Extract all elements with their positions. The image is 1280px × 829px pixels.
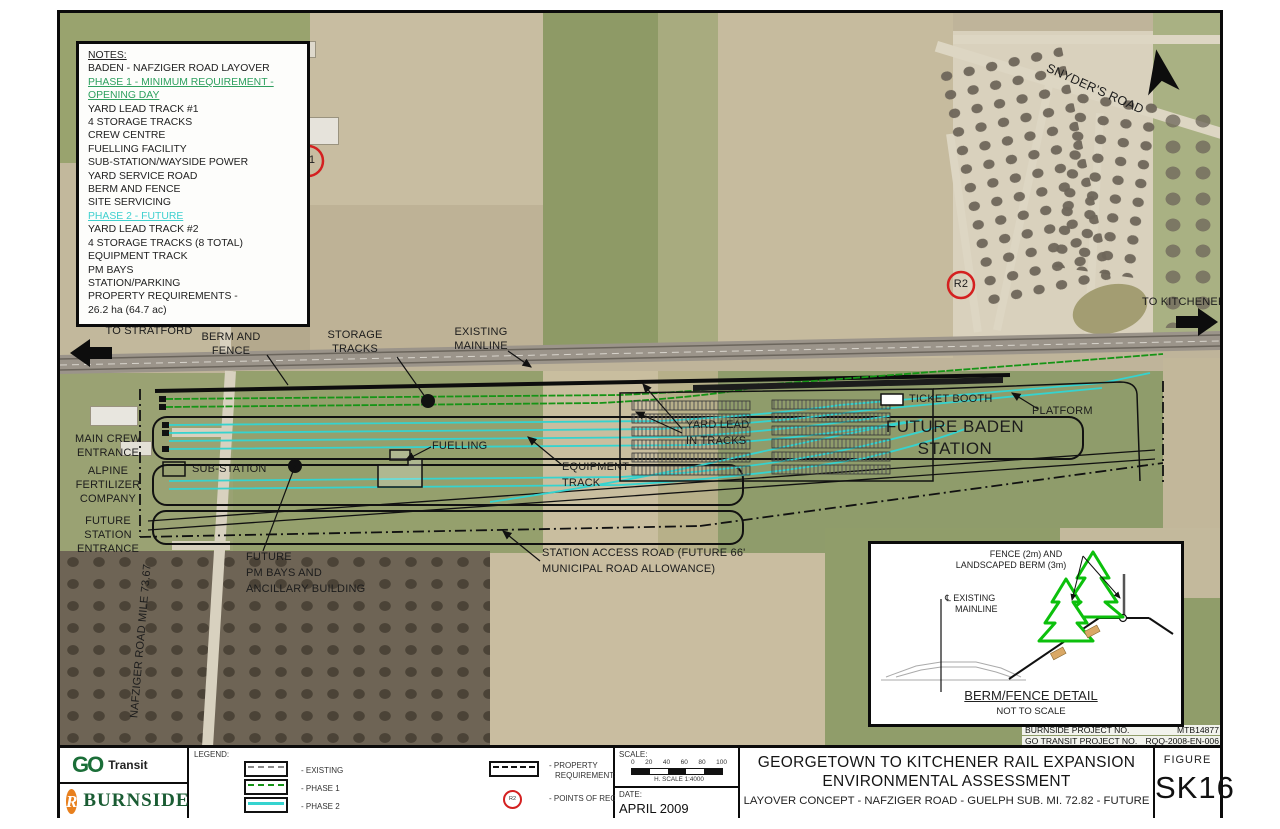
label-yard-lead: IN TRACKS	[686, 435, 746, 447]
track-cross-section	[881, 662, 1026, 680]
cl-existing-mainline-label: MAINLINE	[955, 604, 998, 614]
notes-item: STATION/PARKING	[88, 277, 300, 290]
scale-ticks: 0 20 40 60 80 100	[631, 759, 727, 766]
legend-swatch-phase2	[244, 797, 288, 813]
figure-label: FIGURE	[1155, 754, 1220, 766]
fence-berm-label: LANDSCAPED BERM (3m)	[931, 560, 1091, 570]
title-block: GO Transit R BURNSIDE LEGEND: - EXISTING…	[60, 745, 1220, 818]
label-storage-tracks: STORAGE	[315, 329, 395, 341]
burnside-logo-mark: R	[66, 789, 77, 814]
ticket-booth-box	[881, 394, 903, 405]
legend-swatch-property	[489, 761, 539, 777]
legend-label-property: - PROPERTY	[549, 761, 598, 770]
scale-caption: H. SCALE 1:4000	[631, 776, 727, 783]
label-alpine-fertilizer: ALPINE	[60, 465, 156, 477]
notes-item: SITE SERVICING	[88, 196, 300, 209]
north-arrow	[1140, 47, 1179, 96]
berm-slope	[1009, 618, 1173, 679]
label-station-access-road: MUNICIPAL ROAD ALLOWANCE)	[542, 563, 715, 575]
label-pm-bays: PM BAYS AND	[246, 567, 322, 579]
label-equipment-track: TRACK	[562, 477, 600, 489]
track-bumpers	[159, 396, 169, 452]
label-ticket-booth: TICKET BOOTH	[909, 393, 992, 405]
legend-label-existing: - EXISTING	[301, 766, 343, 775]
go-logo-text: GO	[72, 754, 102, 776]
figure-cell: FIGURE SK16	[1155, 748, 1220, 818]
project-numbers: BURNSIDE PROJECT NO. MTB14877 GO TRANSIT…	[1022, 725, 1220, 745]
label-sub-station: SUB-STATION	[192, 463, 267, 475]
aerial-map: TO STRATFORD BERM AND FENCE STORAGE TRAC…	[60, 13, 1220, 745]
notes-item: YARD SERVICE ROAD	[88, 170, 300, 183]
label-alpine-fertilizer: COMPANY	[60, 493, 156, 505]
figure-number: SK16	[1155, 770, 1220, 806]
label-r2: R2	[947, 278, 975, 290]
label-yard-lead: YARD LEAD	[686, 419, 749, 431]
label-future-baden-station: STATION	[850, 439, 1060, 459]
label-existing-mainline: MAINLINE	[441, 340, 521, 352]
legend-label-property: REQUIREMENTS	[555, 771, 619, 780]
inset-subtitle: NOT TO SCALE	[926, 706, 1136, 717]
label-equipment-track: EQUIPMENT	[562, 461, 629, 473]
berm-fence-detail-inset: FENCE (2m) AND LANDSCAPED BERM (3m) ℄ EX…	[868, 541, 1184, 727]
drawing-title-line2: ENVIRONMENTAL ASSESSMENT	[740, 773, 1153, 791]
notes-item: BERM AND FENCE	[88, 183, 300, 196]
burnside-logo-name: BURNSIDE	[83, 790, 189, 812]
logos-cell: GO Transit R BURNSIDE	[60, 748, 189, 818]
drawing-title-line1: GEORGETOWN TO KITCHENER RAIL EXPANSION	[740, 754, 1153, 772]
go-project-no: GO TRANSIT PROJECT NO. RQQ-2008-EN-006	[1022, 736, 1220, 745]
label-pm-bays: FUTURE	[246, 551, 292, 563]
label-future-station-entrance: FUTURE	[60, 515, 156, 527]
label-main-crew-entrance: ENTRANCE	[60, 447, 156, 459]
label-berm-fence: BERM AND	[191, 331, 271, 343]
scale-date-cell: SCALE: 0 20 40 60 80 100 H. SCALE 1:4000…	[615, 748, 740, 818]
notes-item: PM BAYS	[88, 264, 300, 277]
notes-item: YARD LEAD TRACK #1	[88, 103, 300, 116]
phase1-heading: PHASE 1 - MINIMUM REQUIREMENT - OPENING …	[88, 76, 300, 103]
label-main-crew-entrance: MAIN CREW	[60, 433, 156, 445]
label-existing-mainline: EXISTING	[441, 326, 521, 338]
notes-item: PROPERTY REQUIREMENTS -	[88, 290, 300, 303]
reception-markers	[293, 146, 974, 298]
notes-subject: BADEN - NAFZIGER ROAD LAYOVER	[88, 62, 300, 75]
legend-label-phase2: - PHASE 2	[301, 802, 340, 811]
date-value: APRIL 2009	[619, 801, 689, 816]
go-project-value: RQQ-2008-EN-006	[1145, 736, 1219, 745]
go-project-label: GO TRANSIT PROJECT NO.	[1025, 736, 1137, 745]
label-platform: PLATFORM	[1032, 405, 1093, 417]
notes-item: 4 STORAGE TRACKS (8 TOTAL)	[88, 237, 300, 250]
phase2-heading: PHASE 2 - FUTURE	[88, 210, 300, 223]
go-transit-logo: GO Transit	[60, 748, 187, 784]
label-to-kitchener: TO KITCHENER	[1142, 296, 1220, 308]
transit-logo-text: Transit	[108, 758, 147, 772]
label-alpine-fertilizer: FERTILIZER	[60, 479, 156, 491]
date-label: DATE:	[619, 790, 642, 799]
title-cell: GEORGETOWN TO KITCHENER RAIL EXPANSION E…	[740, 748, 1155, 818]
legend-cell: LEGEND: - EXISTING - PHASE 1 - PHASE 2 -…	[189, 748, 615, 818]
cl-existing-mainline-label: ℄ EXISTING	[945, 593, 995, 604]
label-fuelling: FUELLING	[432, 440, 487, 452]
drawing-frame: TO STRATFORD BERM AND FENCE STORAGE TRAC…	[57, 10, 1223, 818]
notes-heading: NOTES:	[88, 49, 300, 62]
legend-swatch-existing	[244, 761, 288, 777]
notes-item: 4 STORAGE TRACKS	[88, 116, 300, 129]
legend-heading: LEGEND:	[194, 750, 229, 759]
drawing-subtitle: LAYOVER CONCEPT - NAFZIGER ROAD - GUELPH…	[740, 795, 1153, 807]
notes-item: SUB-STATION/WAYSIDE POWER	[88, 156, 300, 169]
drawing-sheet: TO STRATFORD BERM AND FENCE STORAGE TRAC…	[0, 0, 1280, 829]
legend-label-phase1: - PHASE 1	[301, 784, 340, 793]
fence-berm-label: FENCE (2m) AND	[946, 549, 1106, 559]
scale-bar	[631, 768, 723, 775]
points-of-reception-icon: R2	[503, 790, 522, 809]
label-berm-fence: FENCE	[191, 345, 271, 357]
notes-item: CREW CENTRE	[88, 129, 300, 142]
label-future-baden-station: FUTURE BADEN	[850, 417, 1060, 437]
inset-title: BERM/FENCE DETAIL	[926, 688, 1136, 703]
legend-swatch-phase1	[244, 779, 288, 795]
label-future-station-entrance: STATION	[60, 529, 156, 541]
notes-item: EQUIPMENT TRACK	[88, 250, 300, 263]
label-station-access-road: STATION ACCESS ROAD (FUTURE 66'	[542, 547, 745, 559]
label-pm-bays: ANCILLARY BUILDING	[246, 583, 365, 595]
scale-label: SCALE:	[619, 750, 647, 759]
date-cell: DATE: APRIL 2009	[615, 786, 738, 818]
burnside-logo: R BURNSIDE	[60, 784, 187, 818]
notes-box: NOTES: BADEN - NAFZIGER ROAD LAYOVER PHA…	[76, 41, 310, 327]
notes-item: 26.2 ha (64.7 ac)	[88, 304, 300, 317]
notes-item: FUELLING FACILITY	[88, 143, 300, 156]
label-storage-tracks: TRACKS	[315, 343, 395, 355]
notes-item: YARD LEAD TRACK #2	[88, 223, 300, 236]
